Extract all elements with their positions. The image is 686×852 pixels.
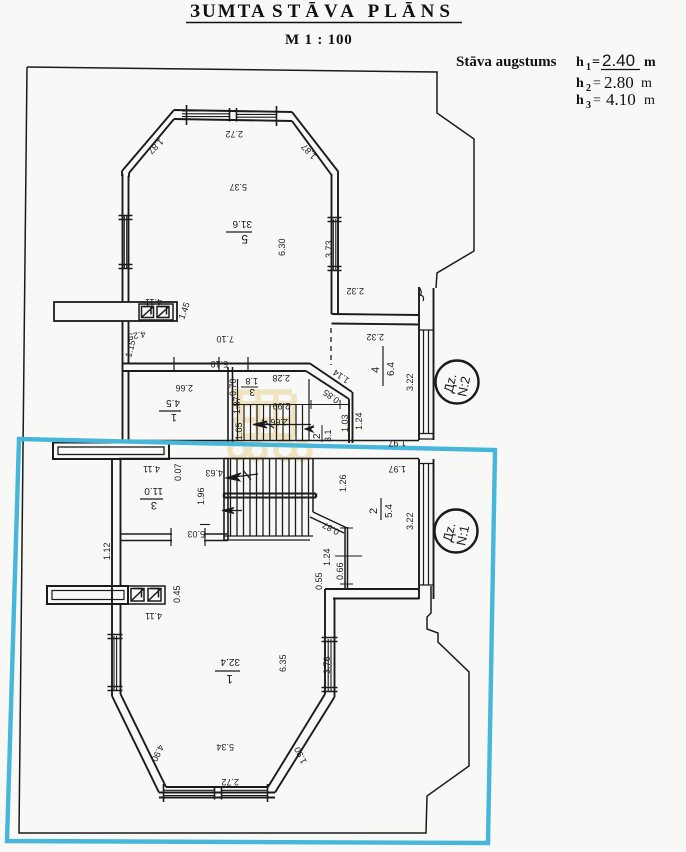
svg-text:2.99: 2.99 (272, 401, 290, 411)
svg-text:1.24: 1.24 (322, 548, 332, 566)
svg-text:6.30: 6.30 (277, 238, 287, 256)
svg-text:4.11: 4.11 (145, 611, 162, 621)
svg-text:5: 5 (241, 232, 248, 246)
svg-text:0.55: 0.55 (314, 572, 324, 590)
svg-text:1.05: 1.05 (234, 422, 244, 440)
svg-text:3.22: 3.22 (405, 512, 415, 530)
svg-text:5.34: 5.34 (216, 742, 234, 752)
svg-text:m: m (644, 55, 656, 70)
svg-text:=: = (592, 55, 600, 70)
svg-text:0.45: 0.45 (172, 585, 182, 603)
svg-text:4: 4 (370, 367, 382, 373)
svg-text:2: 2 (368, 508, 380, 514)
svg-text:=: = (593, 76, 601, 91)
svg-text:6.4: 6.4 (386, 362, 397, 376)
svg-text:1.97: 1.97 (388, 464, 406, 474)
svg-text:3: 3 (586, 100, 591, 111)
svg-text:0.70: 0.70 (228, 378, 238, 396)
svg-text:4.11: 4.11 (145, 297, 162, 307)
svg-text:2: 2 (586, 83, 591, 94)
svg-text:2.72: 2.72 (225, 129, 243, 139)
svg-text:0.07: 0.07 (173, 463, 183, 481)
svg-text:11.0: 11.0 (144, 485, 163, 496)
svg-text:m: m (641, 76, 652, 91)
svg-text:4.63: 4.63 (205, 468, 223, 478)
svg-text:2.66: 2.66 (175, 383, 193, 393)
svg-text:4.11: 4.11 (143, 464, 160, 474)
svg-text:1.96: 1.96 (196, 487, 206, 505)
svg-text:2.32: 2.32 (366, 332, 384, 342)
svg-text:1: 1 (171, 411, 177, 423)
svg-text:2: 2 (312, 433, 323, 439)
svg-text:h: h (576, 76, 584, 91)
svg-text:3.22: 3.22 (405, 373, 415, 391)
svg-text:2.66: 2.66 (270, 417, 288, 427)
svg-text:32.4: 32.4 (220, 656, 240, 667)
svg-text:1.24: 1.24 (354, 412, 364, 430)
svg-text:m: m (644, 93, 655, 108)
svg-text:5.4: 5.4 (384, 504, 395, 518)
svg-text:2.28: 2.28 (272, 373, 290, 383)
svg-text:1.8: 1.8 (245, 376, 258, 386)
svg-text:STĀVA PLĀNS: STĀVA PLĀNS (272, 1, 455, 22)
svg-text:7.10: 7.10 (216, 334, 234, 344)
svg-text:3.1: 3.1 (323, 429, 333, 442)
svg-text:M 1 : 100: M 1 : 100 (285, 32, 353, 48)
svg-text:1.12: 1.12 (102, 542, 112, 560)
svg-text:1.26: 1.26 (338, 474, 348, 492)
svg-text:=: = (593, 93, 601, 108)
svg-text:2.32: 2.32 (346, 286, 364, 296)
svg-text:1.87: 1.87 (232, 396, 242, 414)
svg-text:1.03: 1.03 (340, 414, 350, 432)
svg-text:3.73: 3.73 (324, 240, 334, 258)
svg-text:h: h (576, 93, 584, 108)
svg-text:5.03: 5.03 (187, 529, 205, 539)
svg-text:ЗUMTA: ЗUMTA (190, 1, 267, 22)
svg-text:3.76: 3.76 (322, 656, 332, 674)
svg-text:h: h (576, 55, 584, 70)
svg-text:0.66: 0.66 (335, 562, 345, 580)
svg-text:6.35: 6.35 (278, 654, 288, 672)
svg-text:3: 3 (151, 499, 157, 511)
svg-text:1.97: 1.97 (388, 438, 406, 448)
svg-text:3: 3 (249, 386, 255, 397)
svg-text:2.72: 2.72 (221, 777, 239, 787)
svg-text:5.37: 5.37 (229, 182, 247, 192)
svg-text:1: 1 (586, 62, 591, 73)
svg-text:Stāva augstums: Stāva augstums (456, 54, 557, 70)
svg-text:4.5: 4.5 (166, 397, 180, 408)
svg-text:2.40: 2.40 (602, 51, 635, 70)
svg-text:1: 1 (226, 672, 233, 686)
svg-text:31.6: 31.6 (232, 218, 252, 229)
svg-text:5.19: 5.19 (210, 359, 228, 369)
svg-text:4.10: 4.10 (606, 90, 636, 109)
